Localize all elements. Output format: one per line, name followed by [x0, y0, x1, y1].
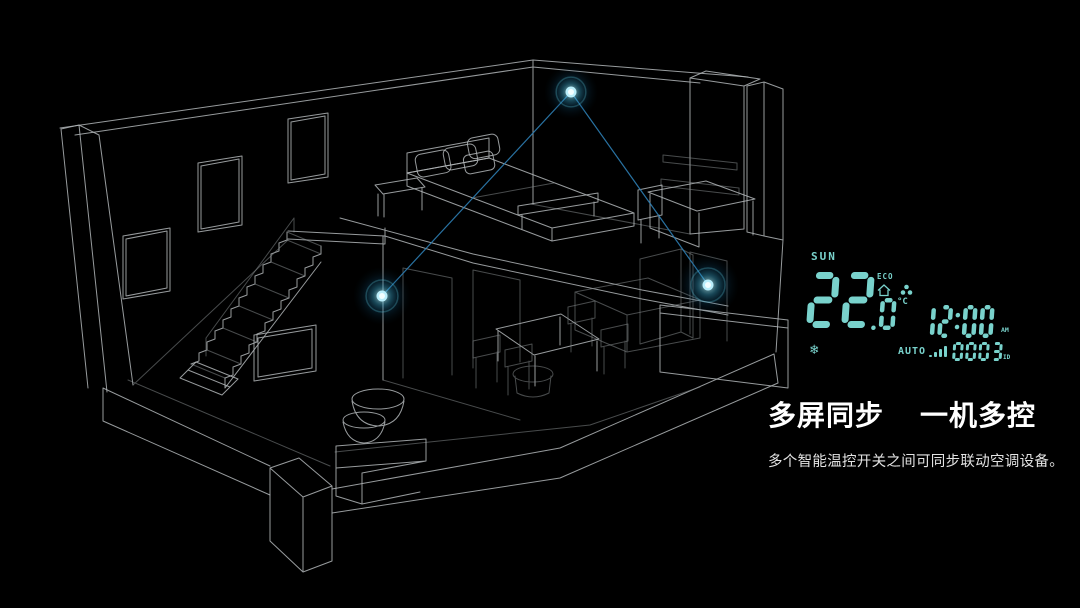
dining-chairs: [473, 301, 628, 397]
sync-link-line: [382, 92, 571, 296]
promo-scene: SUN °C ECO AM ❄ AUTO ID 多屏同步 一机多控 多个智能温控…: [0, 0, 1080, 608]
device-node-upper: [544, 65, 598, 119]
channel-display: [952, 342, 1008, 362]
device-network: [353, 65, 739, 325]
glow-circle: [379, 293, 385, 299]
mode-label: AUTO: [898, 347, 926, 357]
home-icon: [877, 284, 891, 297]
snowflake-icon: ❄: [810, 343, 818, 357]
dining-table: [496, 314, 599, 386]
purifier-fan-icon: [900, 283, 913, 297]
house-furniture: [254, 133, 755, 504]
device-node-left: [353, 267, 411, 325]
headline-right: 一机多控: [920, 398, 1036, 434]
eco-label: ECO: [877, 273, 894, 281]
base-platform: [103, 354, 778, 513]
storage-box: [270, 458, 332, 572]
channel-unit-label: ID: [1003, 355, 1010, 361]
pillow: [442, 143, 479, 171]
glow-circle: [705, 282, 711, 288]
wall-top-edges: [60, 60, 748, 204]
doorway-openings: [403, 268, 520, 378]
bed-mattress: [407, 158, 634, 241]
floor-hint-lines: [128, 204, 700, 466]
sofa: [336, 439, 426, 504]
staircase-railing: [206, 218, 294, 356]
thermostat-display: SUN °C ECO AM ❄ AUTO ID: [800, 245, 1030, 375]
pillow: [414, 149, 452, 178]
headline-left: 多屏同步: [768, 398, 884, 434]
pillow: [466, 133, 500, 160]
wardrobe: [690, 71, 760, 234]
wall-picture-frames: [123, 113, 328, 299]
staircase-steps: [191, 232, 287, 364]
glow-circle: [568, 89, 574, 95]
planter-pots: [343, 389, 404, 443]
device-node-right: [677, 254, 739, 316]
temperature-unit-label: °C: [897, 298, 908, 307]
temperature-main-display: [806, 272, 880, 329]
signal-bars-icon: [929, 346, 947, 357]
meridiem-label: AM: [1001, 327, 1009, 334]
headline: 多屏同步 一机多控: [768, 398, 1068, 434]
staircase-treads: [191, 232, 321, 378]
tv-panel: [254, 325, 316, 381]
staircase-lower-flight: [180, 362, 238, 395]
left-column: [61, 125, 133, 392]
bed-bench: [518, 193, 598, 229]
right-column: [747, 82, 783, 352]
clock-display: [920, 305, 1000, 339]
staircase-steps-outer: [225, 246, 321, 378]
house-structure: [60, 60, 788, 572]
day-label: SUN: [811, 251, 837, 262]
side-stool: [375, 178, 425, 217]
subtitle: 多个智能温控开关之间可同步联动空调设备。: [768, 452, 1068, 472]
pillow: [463, 150, 496, 174]
sync-link-line: [571, 92, 708, 285]
caption-block: 多屏同步 一机多控 多个智能温控开关之间可同步联动空调设备。: [768, 398, 1068, 473]
